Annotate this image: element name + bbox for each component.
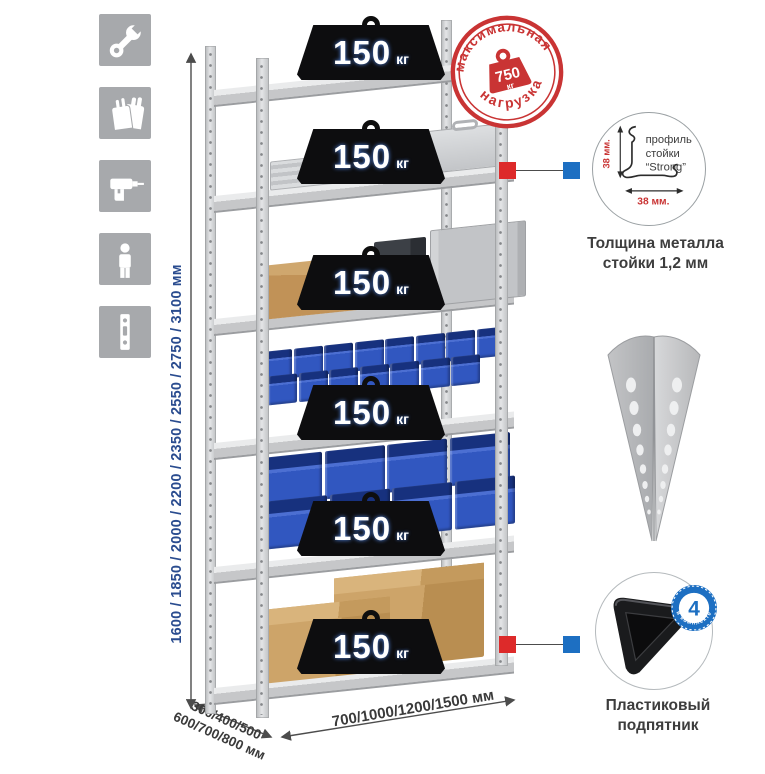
rack-upright-back-left (205, 46, 216, 714)
load-badge: 150кг (297, 120, 445, 186)
profile-caption-line2: стойки 1,2 мм (568, 254, 743, 274)
load-badge: 150кг (297, 610, 445, 676)
load-unit: кг (396, 527, 409, 543)
foot-caption-line1: Пластиковый (578, 696, 738, 716)
upright-strip-panel (99, 306, 151, 358)
storage-bin (451, 354, 480, 386)
height-dimension-label: 1600 / 1850 / 2000 / 2200 / 2350 / 2550 … (169, 215, 185, 693)
foot-caption-line2: подпятник (578, 716, 738, 736)
assembly-tools-panel (99, 14, 151, 66)
profile-dim-vertical: 38 мм. (602, 139, 612, 168)
profile-dim-horizontal: 38 мм. (637, 197, 669, 208)
person-panel (99, 233, 151, 285)
load-unit: кг (396, 645, 409, 661)
load-unit: кг (396, 51, 409, 67)
person-icon (104, 238, 146, 280)
drill-panel (99, 160, 151, 212)
angle-post-image (598, 323, 708, 553)
load-badge: 150кг (297, 16, 445, 82)
included-count: 4 (688, 597, 700, 620)
foot-caption: Пластиковый подпятник (578, 696, 738, 737)
profile-label-1: профиль (646, 134, 692, 146)
profile-cross-section-drawing: 38 мм. 38 мм. профиль стойки “Strong” (593, 113, 704, 224)
height-dimension-line (185, 50, 197, 712)
rack-upright-front-left (256, 58, 269, 718)
callout-marker-blue-bottom (563, 636, 580, 653)
product-infographic: { "page": {"background": "#ffffff"}, "le… (0, 0, 765, 765)
load-value: 150 (333, 264, 391, 302)
load-badge: 150кг (297, 492, 445, 558)
gloves-icon (104, 92, 146, 134)
callout-marker-red-top (499, 162, 516, 179)
load-value: 150 (333, 510, 391, 548)
load-value: 150 (333, 628, 391, 666)
callout-line-top (514, 170, 564, 171)
profile-label-2: стойки (646, 148, 680, 160)
load-badge: 150кг (297, 376, 445, 442)
load-value: 150 (333, 138, 391, 176)
profile-caption-line1: Толщина металла (568, 234, 743, 254)
storage-bin (268, 373, 297, 405)
callout-marker-red-bottom (499, 636, 516, 653)
load-unit: кг (396, 411, 409, 427)
included-count-badge: 4 в комплекте (670, 584, 718, 637)
drill-icon (104, 165, 146, 207)
load-badge: 150кг (297, 246, 445, 312)
load-value: 150 (333, 34, 391, 72)
callout-marker-blue-top (563, 162, 580, 179)
perforated-strip-icon (104, 311, 146, 353)
callout-line-bottom (514, 644, 564, 645)
profile-caption: Толщина металла стойки 1,2 мм (568, 234, 743, 275)
gloves-panel (99, 87, 151, 139)
profile-label-3: “Strong” (646, 161, 687, 173)
wrench-icon (104, 19, 146, 61)
load-value: 150 (333, 394, 391, 432)
load-unit: кг (396, 281, 409, 297)
profile-detail-circle: 38 мм. 38 мм. профиль стойки “Strong” (592, 112, 706, 226)
load-unit: кг (396, 155, 409, 171)
